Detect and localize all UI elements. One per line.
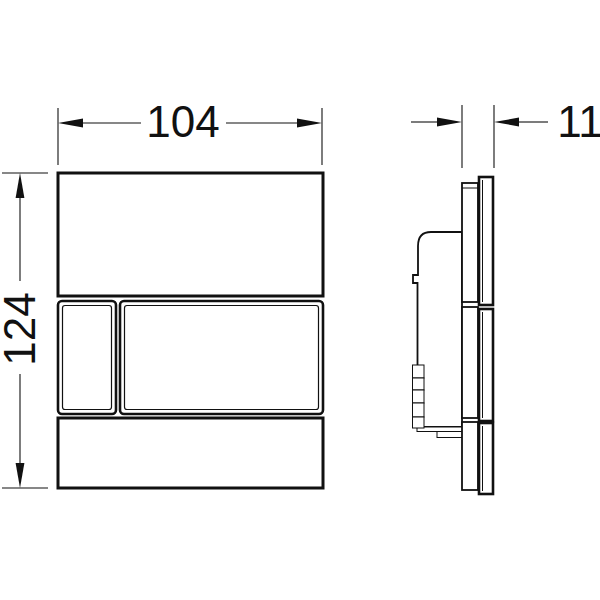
depth-dimension: 11 — [411, 97, 600, 168]
front-small-button — [58, 301, 116, 414]
glass-bottom-segment — [479, 423, 493, 494]
glass-middle-segment — [479, 309, 493, 421]
carrier-bottom-segment — [462, 422, 478, 490]
drawing-svg: 104 124 11 — [0, 0, 600, 600]
carrier-top-segment — [462, 183, 478, 302]
side-view — [413, 177, 494, 494]
front-large-button — [120, 301, 323, 414]
side-bottom-tab-2 — [437, 432, 465, 438]
side-terminal-blocks — [413, 365, 425, 428]
terminal-block — [413, 403, 425, 417]
small-button-outer — [58, 301, 116, 414]
front-top-panel — [58, 173, 323, 296]
terminal-block — [413, 365, 425, 378]
height-dim-label: 124 — [0, 292, 44, 365]
side-glass-layer — [479, 177, 493, 494]
width-dim-label: 104 — [146, 97, 219, 146]
arrow-left-icon — [494, 118, 519, 127]
terminal-block — [413, 417, 425, 428]
arrow-down-icon — [16, 463, 25, 488]
front-bottom-panel — [58, 418, 323, 488]
side-carrier-layer — [462, 183, 478, 490]
width-dimension: 104 — [58, 97, 322, 165]
terminal-block — [413, 378, 425, 390]
arrow-left-icon — [58, 119, 83, 128]
technical-drawing-canvas: 104 124 11 — [0, 0, 600, 600]
arrow-right-icon — [437, 118, 462, 127]
arrow-right-icon — [297, 119, 322, 128]
large-button-outer — [120, 301, 323, 414]
height-dimension: 124 — [0, 173, 48, 488]
depth-dim-label: 11 — [557, 97, 600, 146]
arrow-up-icon — [16, 173, 25, 198]
glass-top-segment — [479, 177, 493, 305]
front-view — [58, 173, 323, 488]
terminal-block — [413, 390, 425, 403]
carrier-middle-segment — [462, 307, 478, 418]
